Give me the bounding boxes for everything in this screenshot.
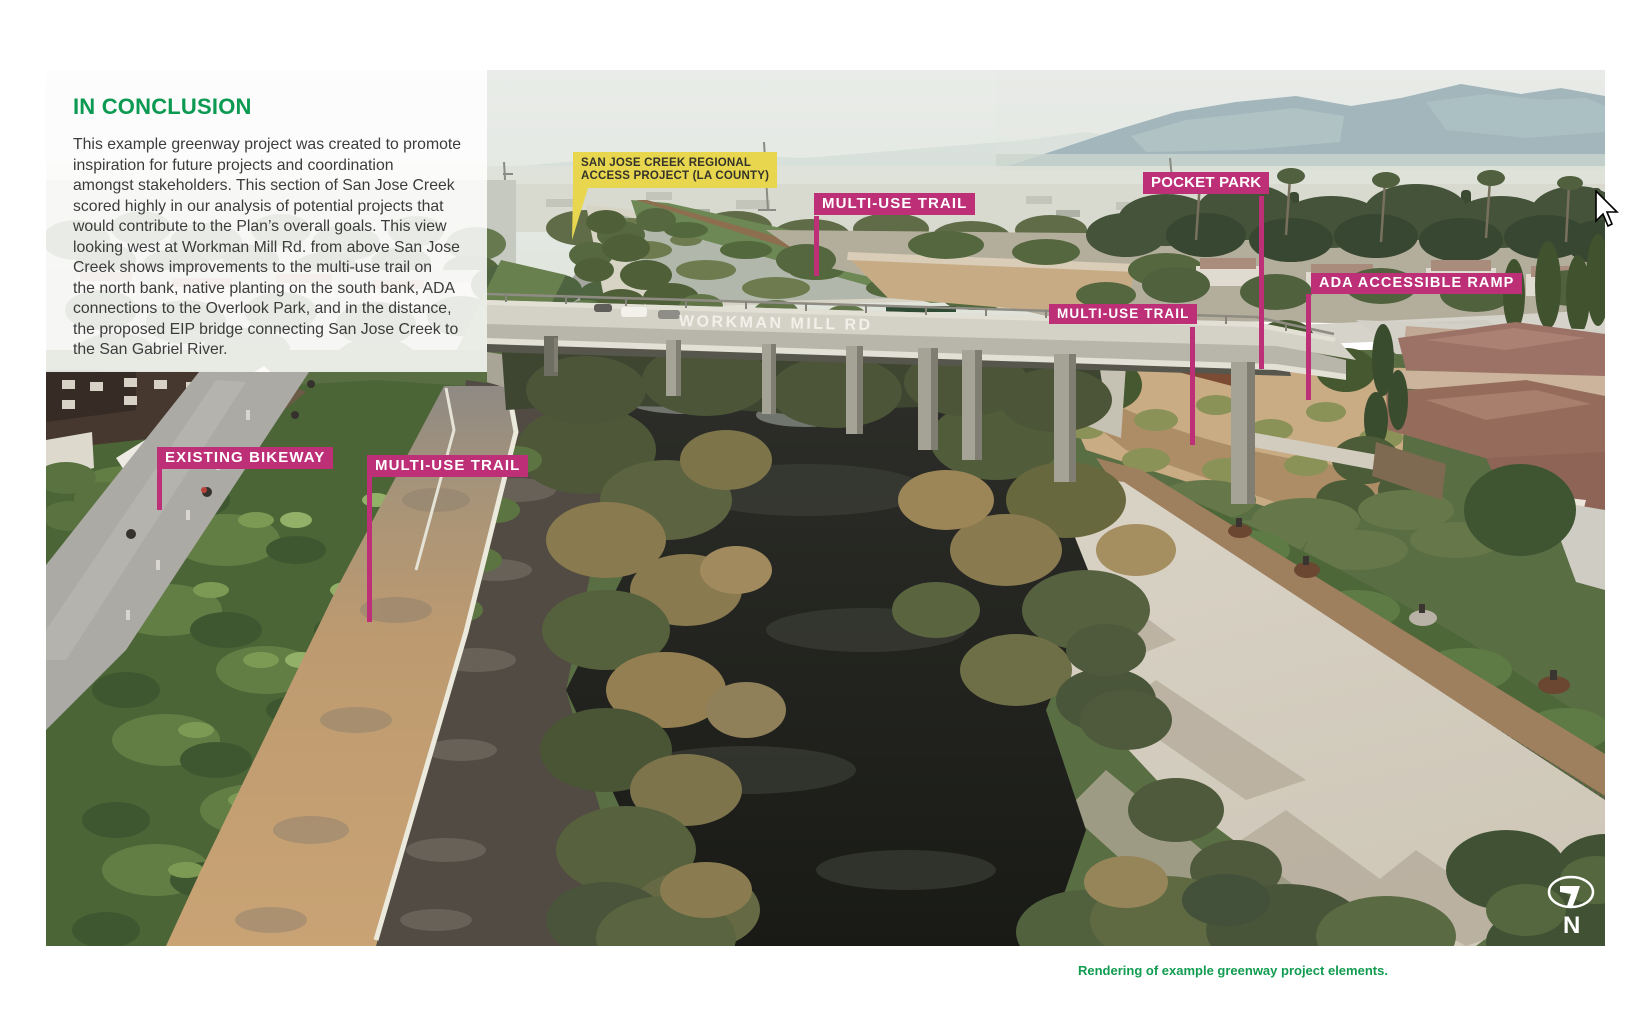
svg-text:N: N [1563,912,1580,939]
